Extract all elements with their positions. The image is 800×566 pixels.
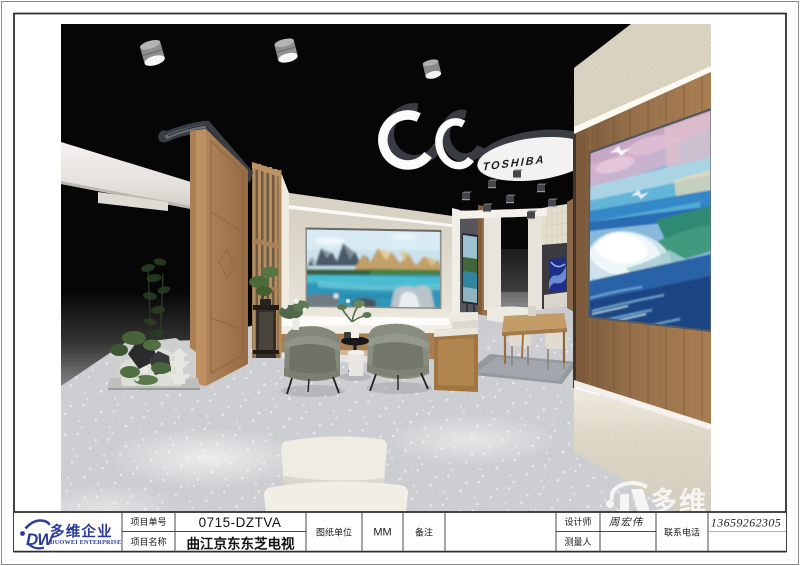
svg-text:备注: 备注 [415, 527, 433, 538]
svg-text:项目单号: 项目单号 [130, 516, 166, 527]
svg-text:测量人: 测量人 [564, 537, 591, 547]
svg-text:联系电话: 联系电话 [664, 527, 700, 538]
svg-text:0715-DZTVA: 0715-DZTVA [199, 515, 282, 530]
svg-text:MM: MM [373, 527, 391, 539]
svg-text:DUOWEI ENTERPRISE: DUOWEI ENTERPRISE [50, 539, 121, 546]
svg-text:多维企业: 多维企业 [50, 523, 113, 541]
svg-text:周宏伟: 周宏伟 [609, 517, 644, 529]
svg-text:曲江京东东芝电视: 曲江京东东芝电视 [187, 536, 295, 552]
svg-text:13659262305: 13659262305 [711, 516, 781, 530]
svg-text:图纸单位: 图纸单位 [316, 527, 352, 538]
svg-text:项目名称: 项目名称 [130, 536, 166, 547]
svg-text:设计师: 设计师 [564, 516, 591, 527]
